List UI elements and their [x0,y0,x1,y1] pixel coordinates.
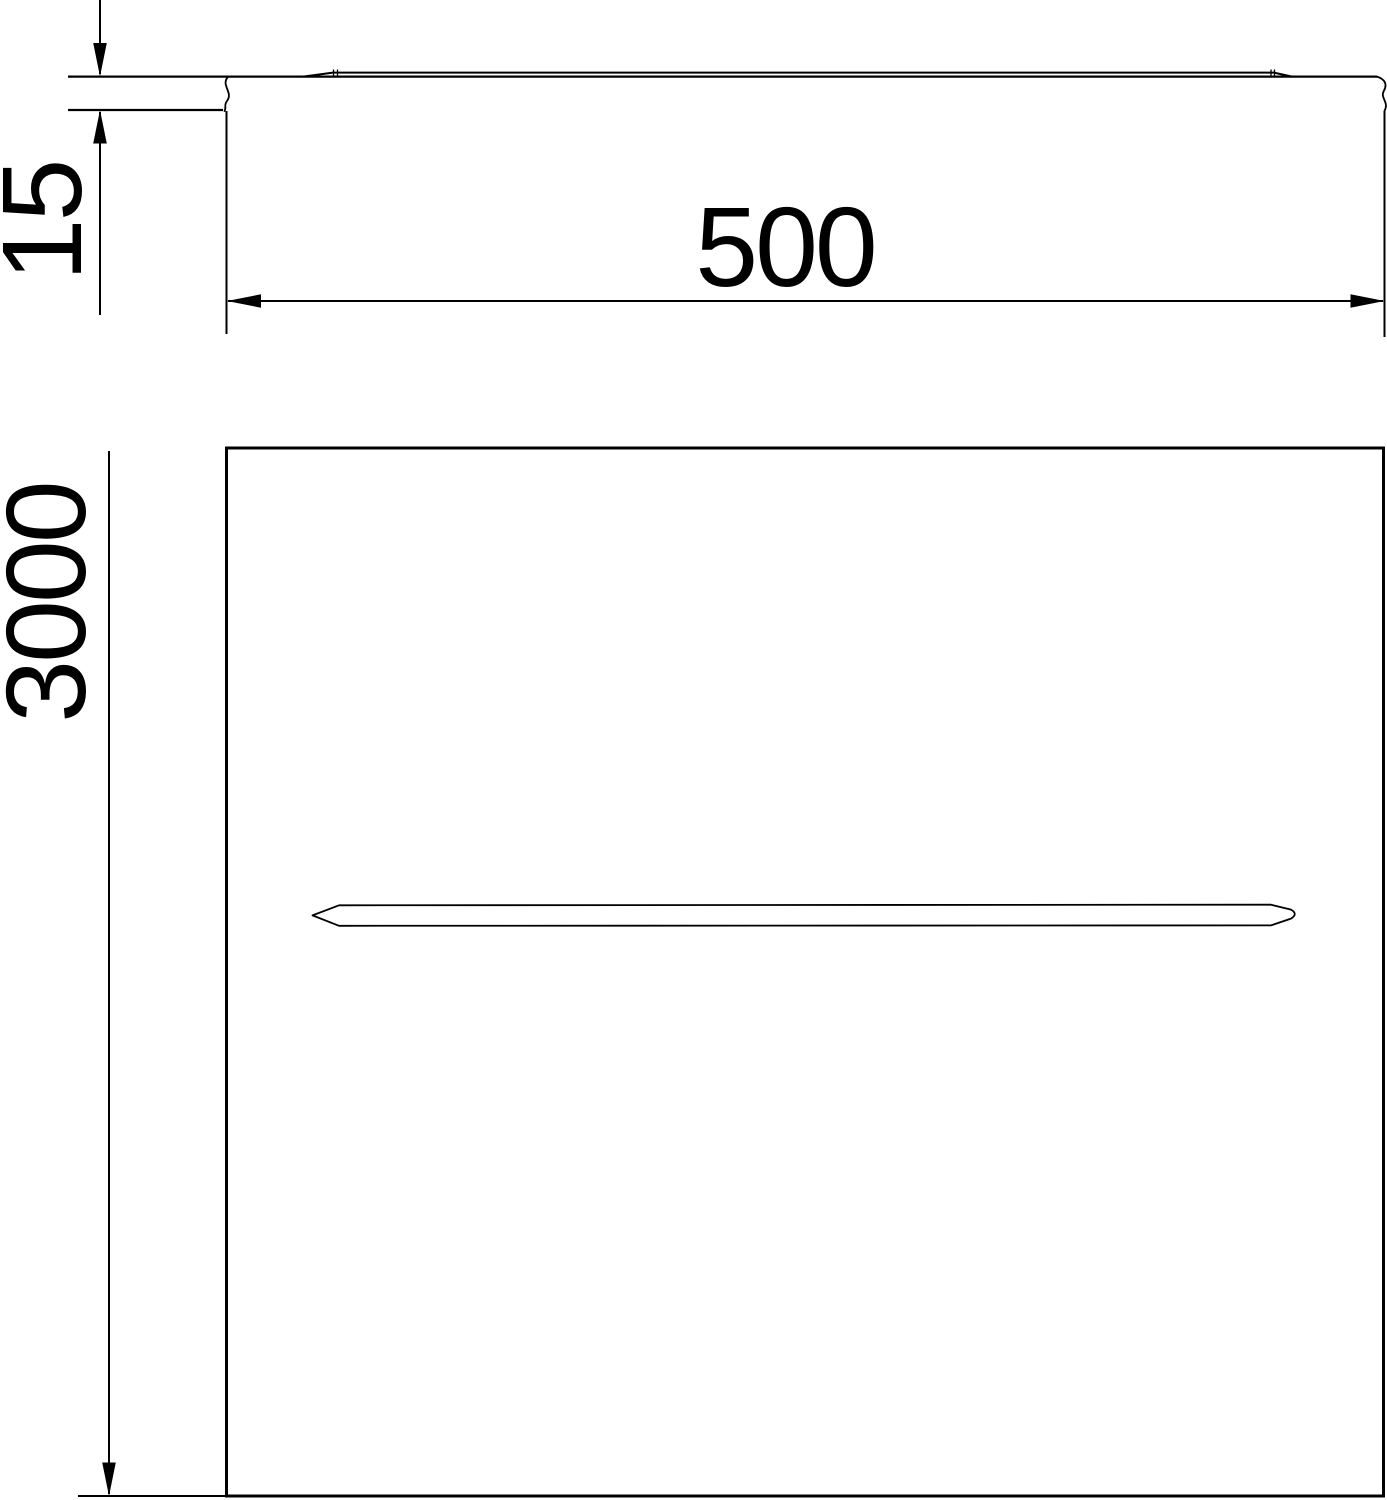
dim-thickness-arrow-down [93,43,107,77]
side-view [68,70,1386,112]
longitudinal-slot [313,905,1295,926]
dim-length-arrow-down [102,1463,116,1497]
dim-width-label: 500 [695,184,875,310]
dim-thickness-arrow-up [93,110,107,144]
dim-thickness-label: 15 [0,162,105,282]
technical-drawing-canvas: 15 500 3000 [0,0,1387,1500]
dim-width-arrow-right [1351,294,1385,307]
cover-panel-outline [227,448,1384,1496]
dim-length-label: 3000 [0,483,109,722]
break-symbol-right [1377,77,1386,111]
top-view [227,448,1384,1496]
dimension-width: 500 [227,111,1385,337]
dim-width-arrow-left [227,294,261,307]
dimension-length: 3000 [0,451,226,1496]
break-symbol-left [225,78,229,112]
dimension-thickness: 15 [0,0,107,315]
